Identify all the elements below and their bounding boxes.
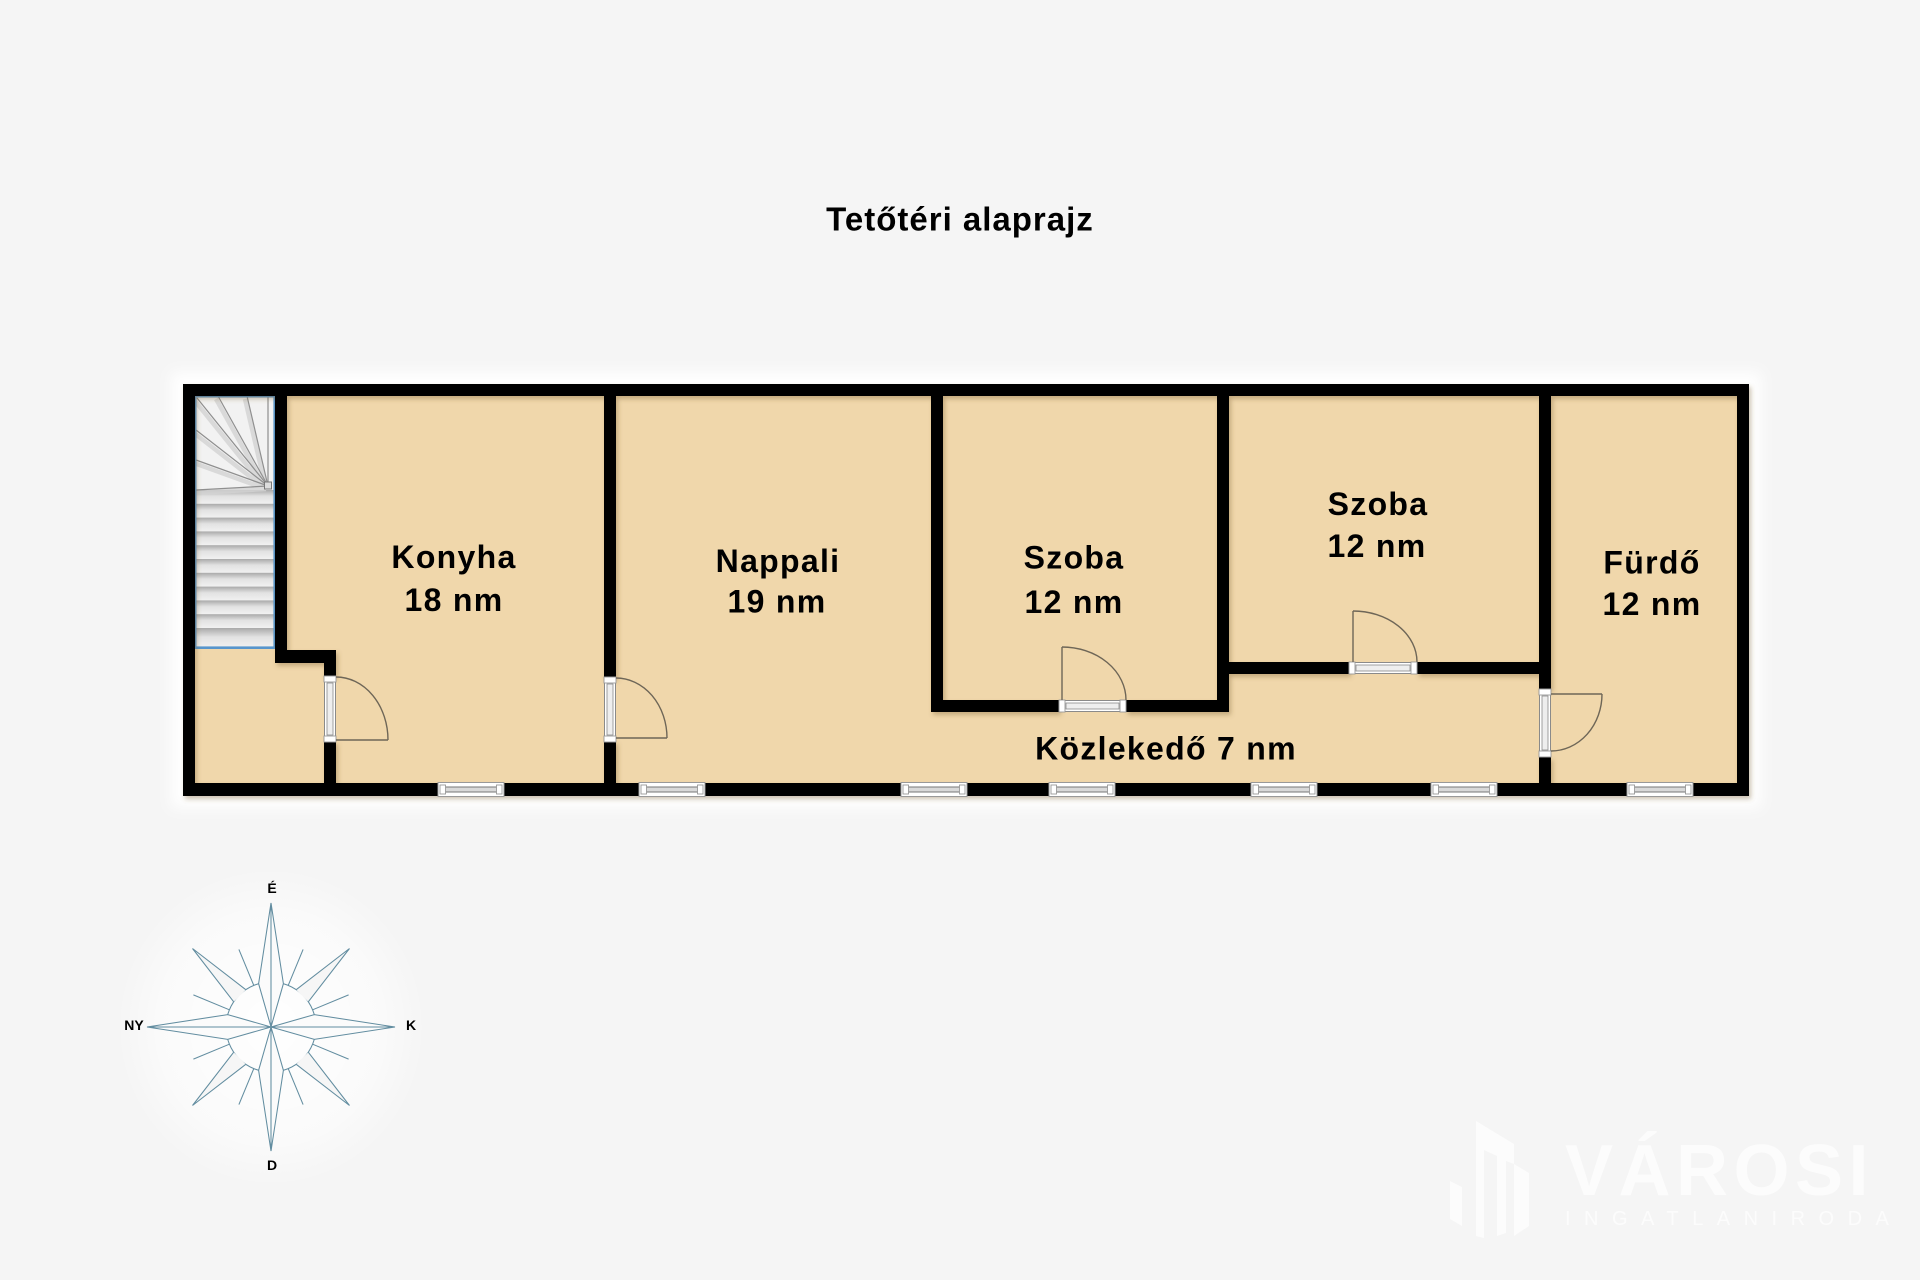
svg-text:19 nm: 19 nm — [728, 584, 827, 620]
svg-text:D: D — [267, 1157, 277, 1173]
svg-text:NY: NY — [124, 1017, 144, 1033]
svg-text:É: É — [267, 880, 276, 896]
svg-text:Nappali: Nappali — [716, 543, 841, 579]
svg-text:Szoba: Szoba — [1024, 540, 1125, 576]
svg-text:Közlekedő 7 nm: Közlekedő 7 nm — [1035, 731, 1297, 767]
svg-text:12 nm: 12 nm — [1328, 528, 1427, 564]
svg-text:K: K — [406, 1017, 416, 1033]
svg-text:18 nm: 18 nm — [405, 582, 504, 618]
svg-text:VÁROSI: VÁROSI — [1565, 1131, 1874, 1211]
svg-text:12 nm: 12 nm — [1603, 586, 1702, 622]
svg-text:Fürdő: Fürdő — [1603, 545, 1700, 581]
svg-text:Tetőtéri alaprajz: Tetőtéri alaprajz — [826, 201, 1094, 238]
svg-text:Szoba: Szoba — [1328, 486, 1429, 522]
svg-text:Konyha: Konyha — [391, 539, 516, 575]
svg-text:12 nm: 12 nm — [1025, 584, 1124, 620]
svg-text:INGATLANIRODA: INGATLANIRODA — [1565, 1208, 1902, 1230]
